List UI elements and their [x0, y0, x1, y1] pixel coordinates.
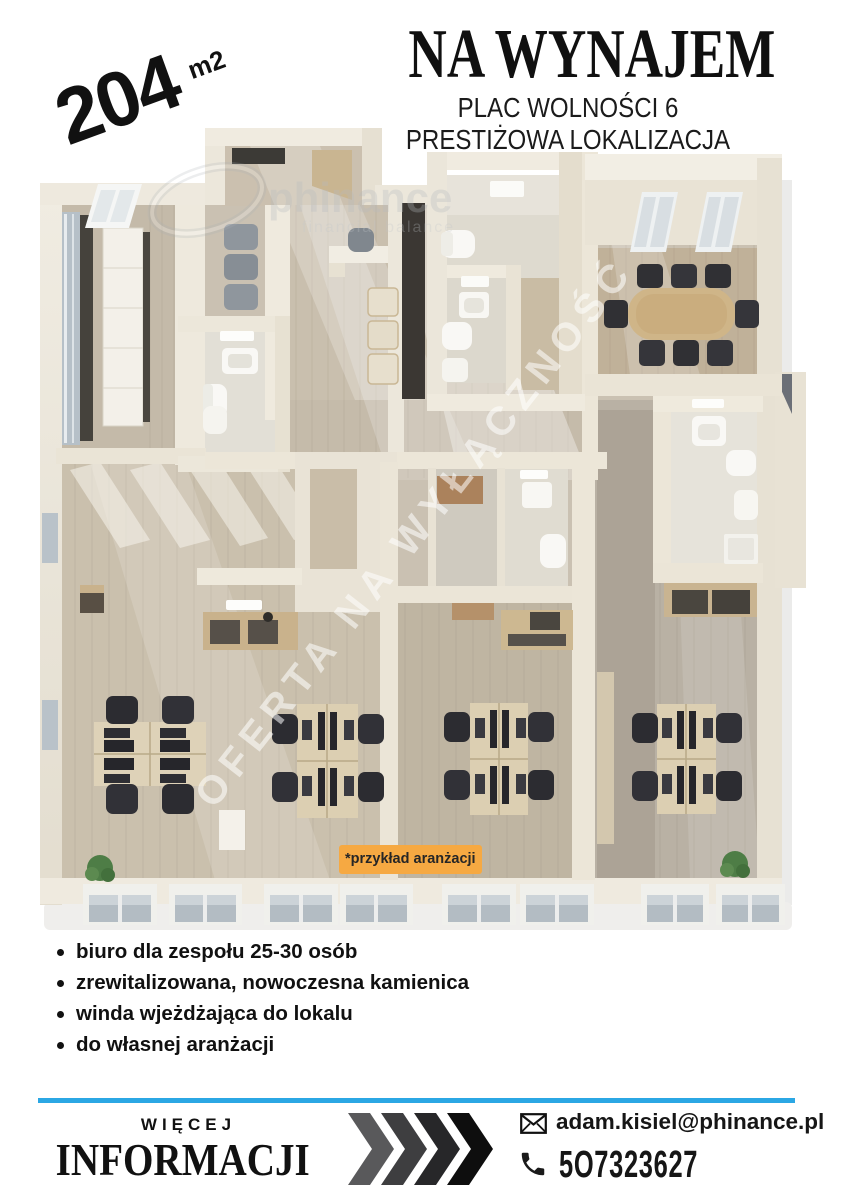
svg-text:financial balance: financial balance — [302, 219, 455, 236]
svg-text:phinance: phinance — [268, 174, 452, 221]
